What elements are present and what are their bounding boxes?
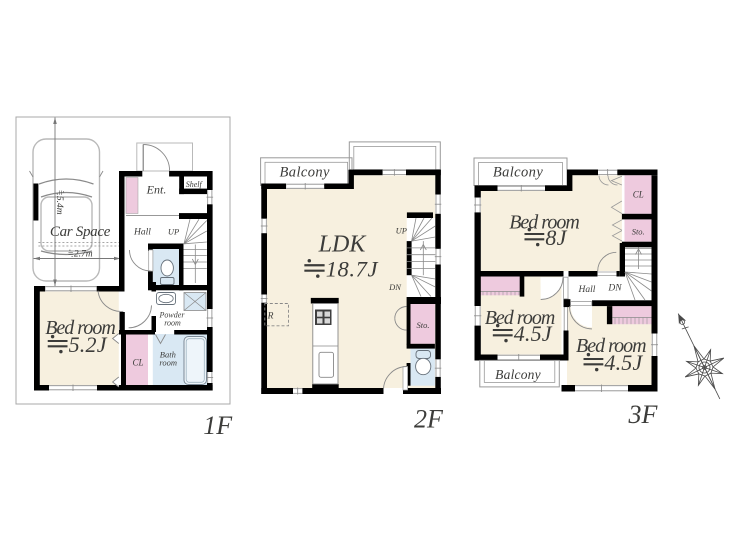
svg-text:4.5J: 4.5J [604, 350, 643, 375]
svg-text:Balcony: Balcony [495, 367, 541, 382]
svg-text:Hall: Hall [133, 228, 151, 238]
svg-text:2F: 2F [414, 405, 444, 434]
svg-text:Hall: Hall [578, 285, 596, 295]
svg-text:room: room [159, 358, 177, 368]
svg-text:18.7J: 18.7J [326, 257, 379, 282]
svg-text:8J: 8J [545, 225, 567, 250]
svg-text:=5.4m: =5.4m [54, 189, 64, 214]
svg-text:Balcony: Balcony [280, 165, 330, 181]
svg-text:CL: CL [633, 190, 644, 200]
svg-text:Bed room: Bed room [509, 212, 579, 234]
svg-text:Sto.: Sto. [417, 320, 430, 330]
svg-text:5.2J: 5.2J [69, 332, 108, 357]
svg-text:UP: UP [396, 226, 407, 236]
svg-text:3F: 3F [628, 400, 659, 429]
svg-text:Car Space: Car Space [50, 224, 111, 240]
svg-text:LDK: LDK [318, 232, 368, 258]
svg-text:DN: DN [388, 282, 402, 292]
svg-text:Shelf: Shelf [186, 180, 204, 189]
svg-text:Sto.: Sto. [632, 227, 645, 237]
svg-text:DN: DN [607, 284, 622, 294]
svg-text:R: R [267, 312, 274, 322]
svg-text:Balcony: Balcony [493, 165, 543, 181]
svg-text:1F: 1F [203, 411, 233, 440]
svg-text:CL: CL [132, 358, 143, 368]
svg-text:=2.7m: =2.7m [67, 250, 92, 260]
svg-text:UP: UP [168, 227, 179, 237]
svg-text:room: room [164, 319, 181, 328]
svg-text:Ent.: Ent. [146, 183, 167, 197]
svg-text:4.5J: 4.5J [514, 321, 553, 346]
